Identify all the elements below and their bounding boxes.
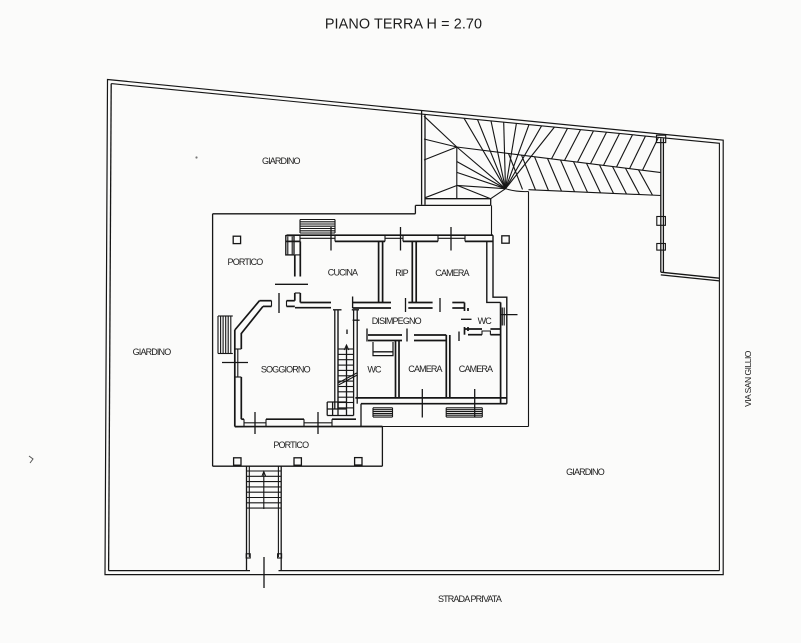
svg-text:CUCINA: CUCINA (328, 268, 358, 278)
svg-text:GIARDINO: GIARDINO (262, 156, 301, 166)
svg-text:GIARDINO: GIARDINO (133, 347, 172, 357)
svg-text:CAMERA: CAMERA (435, 268, 469, 278)
svg-text:WC: WC (478, 316, 493, 326)
svg-text:PIANO TERRA H = 2.70: PIANO TERRA H = 2.70 (325, 17, 482, 33)
svg-text:STRADA PRIVATA: STRADA PRIVATA (438, 594, 502, 604)
svg-text:DISIMPEGNO: DISIMPEGNO (372, 316, 422, 326)
svg-text:SOGGIORNO: SOGGIORNO (261, 364, 311, 374)
svg-text:PORTICO: PORTICO (228, 257, 264, 267)
svg-text:RIP: RIP (395, 268, 408, 278)
svg-text:CAMERA: CAMERA (459, 364, 493, 374)
svg-text:VIA SAN GILLIO: VIA SAN GILLIO (743, 350, 753, 407)
svg-text:PORTICO: PORTICO (273, 440, 309, 450)
svg-text:WC: WC (367, 364, 382, 374)
svg-text:GIARDINO: GIARDINO (566, 467, 605, 477)
svg-text:CAMERA: CAMERA (408, 364, 442, 374)
